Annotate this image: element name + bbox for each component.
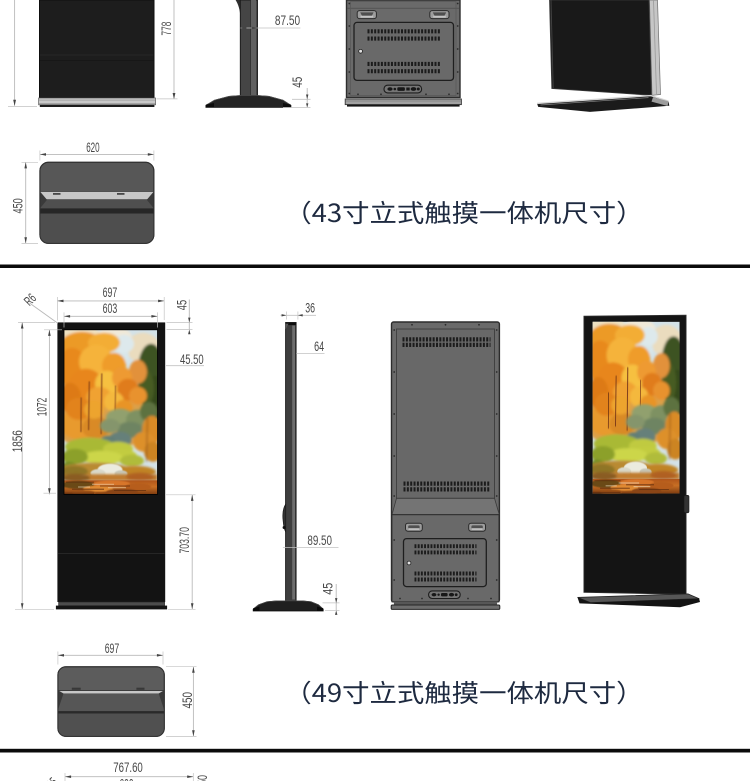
svg-text:36: 36 xyxy=(305,301,315,316)
svg-text:697: 697 xyxy=(105,641,120,656)
svg-text:45: 45 xyxy=(321,583,336,595)
svg-text:450: 450 xyxy=(195,775,210,781)
svg-text:703.70: 703.70 xyxy=(177,527,192,553)
svg-text:1856: 1856 xyxy=(10,430,25,452)
svg-text:697: 697 xyxy=(103,285,118,300)
svg-text:45.50: 45.50 xyxy=(180,352,204,367)
svg-text:45: 45 xyxy=(175,300,190,310)
svg-text:R15: R15 xyxy=(40,775,61,781)
svg-text:767.60: 767.60 xyxy=(113,760,143,775)
svg-text:45: 45 xyxy=(290,77,305,88)
svg-text:1072: 1072 xyxy=(35,398,50,417)
svg-text:450: 450 xyxy=(11,198,26,213)
svg-text:778: 778 xyxy=(159,22,174,36)
svg-text:64: 64 xyxy=(314,339,324,354)
svg-text:R6: R6 xyxy=(21,291,39,309)
svg-text:89.50: 89.50 xyxy=(307,533,332,548)
svg-text:450: 450 xyxy=(180,692,195,709)
svg-text:600: 600 xyxy=(120,777,134,781)
svg-text:87.50: 87.50 xyxy=(275,13,300,28)
svg-text:603: 603 xyxy=(103,301,118,316)
svg-text:620: 620 xyxy=(86,140,99,155)
